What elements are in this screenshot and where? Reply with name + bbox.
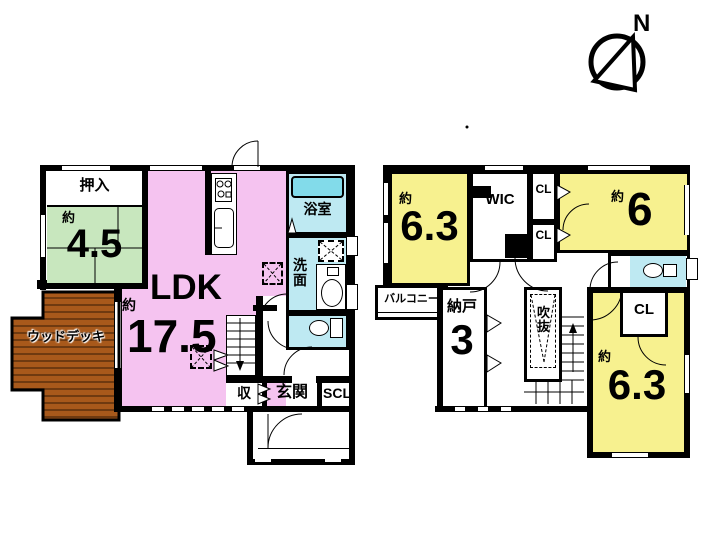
storage-label: 収 — [226, 386, 262, 401]
wood-deck — [12, 292, 122, 420]
bathroom-label: 浴室 — [286, 202, 349, 217]
bedroom-b-approx-label: 約 — [611, 190, 624, 204]
wall-notch — [232, 407, 244, 411]
window-box — [686, 258, 698, 280]
toilet-tank-icon — [330, 318, 343, 338]
shoe-closet-label: SCL — [320, 386, 354, 401]
closet-mid-label: CL — [530, 229, 557, 242]
window-box — [346, 284, 358, 310]
bedroom-b-size-label: 6 — [627, 185, 653, 233]
wall — [253, 305, 277, 311]
wic-label: WIC — [470, 192, 530, 208]
wall-notch — [455, 407, 465, 411]
window — [684, 185, 690, 235]
ldk-name-label: LDK — [150, 270, 222, 307]
closet-bottom-label: CL — [620, 302, 668, 318]
washroom-label: 洗面 — [293, 258, 310, 287]
porch-step-line — [258, 448, 350, 449]
bedroom-a-size-label: 6.3 — [389, 204, 470, 248]
closet-top-label: CL — [530, 183, 557, 196]
wall — [505, 234, 531, 258]
appliance-dashed-box — [262, 262, 283, 285]
washer-dashed-box — [318, 240, 344, 262]
porch-notch — [255, 453, 271, 462]
wall-notch — [172, 407, 184, 411]
wall-notch — [212, 407, 224, 411]
stray-dot — [466, 126, 469, 129]
bedroom-c-size-label: 6.3 — [587, 363, 687, 407]
vanity-faucet — [327, 267, 339, 276]
window — [485, 165, 523, 171]
window — [684, 355, 690, 393]
bathtub-icon — [291, 176, 344, 198]
wall-notch — [478, 407, 488, 411]
toilet-tank-icon — [663, 264, 677, 277]
wall-notch — [192, 407, 204, 411]
tatami-size-label: 4.5 — [47, 223, 142, 265]
vanity-basin — [321, 279, 343, 307]
window — [62, 165, 110, 171]
storage-room-name-label: 納戸 — [437, 299, 487, 315]
ldk-size-label: 17.5 — [127, 312, 217, 360]
atrium-label: 吹抜 — [535, 306, 552, 333]
window — [383, 223, 389, 263]
toilet-bowl-icon — [309, 320, 329, 336]
floor2-wall-eraser — [377, 318, 435, 418]
window — [612, 452, 648, 458]
porch-notch — [325, 453, 341, 462]
window — [588, 165, 650, 171]
window-box — [346, 236, 358, 256]
storage-room-size-label: 3 — [437, 318, 487, 362]
floor-plan-canvas: 押入 約 4.5 収 玄関 SCL 浴室 洗面 LDK 約 — [0, 0, 706, 550]
north-compass-icon: N — [591, 10, 650, 90]
bedroom-b — [557, 171, 690, 253]
wall-notch — [501, 407, 511, 411]
door-gap — [292, 376, 316, 383]
wall-notch — [152, 407, 164, 411]
window — [40, 215, 46, 257]
balcony-rail-line — [378, 312, 445, 313]
kitchen-sink-icon — [214, 208, 234, 248]
wall — [226, 376, 355, 383]
wood-deck-label: ウッドデッキ — [14, 330, 118, 344]
closet-top — [530, 171, 557, 222]
entrance-label: 玄関 — [267, 385, 317, 402]
wall — [142, 165, 148, 288]
window — [150, 165, 202, 171]
oshiire-label: 押入 — [47, 178, 142, 194]
north-label: N — [633, 10, 650, 37]
door-gap — [234, 165, 260, 171]
stove-icon — [215, 178, 232, 202]
window — [383, 183, 389, 215]
staircase-1f — [226, 315, 256, 376]
toilet-bowl-icon — [643, 263, 663, 278]
